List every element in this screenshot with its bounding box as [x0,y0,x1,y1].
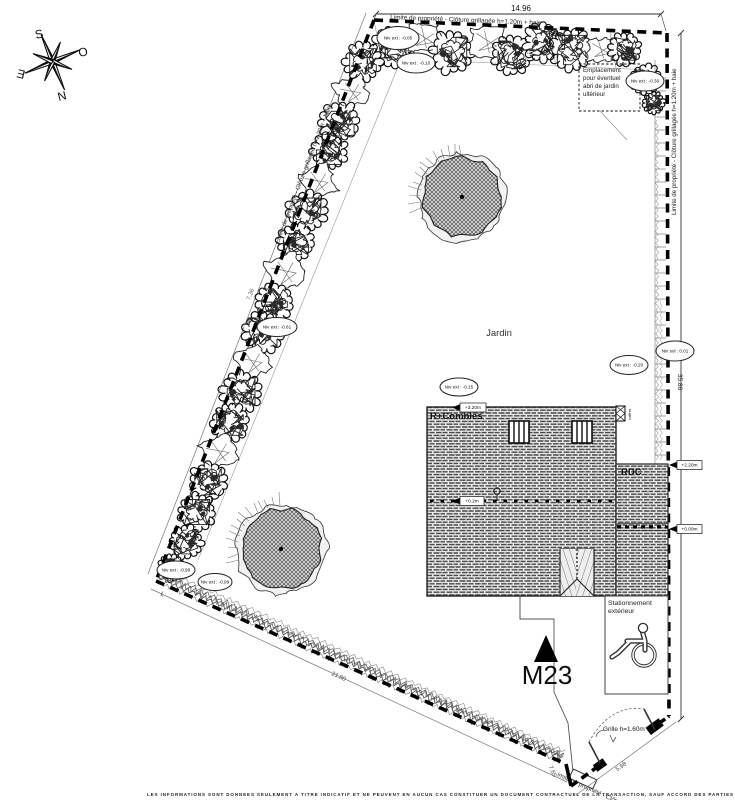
svg-text:35.86: 35.86 [676,374,683,391]
svg-text:pour éventuel: pour éventuel [583,75,621,82]
svg-text:coffret: coffret [627,408,632,420]
svg-text:Niv sol : 0.01: Niv sol : 0.01 [662,349,689,354]
svg-text:R+Combles: R+Combles [430,411,483,422]
svg-text:Limite de propriété - Clôture: Limite de propriété - Clôture grillagée … [671,68,678,215]
svg-text:+0.00m: +0.00m [681,527,697,533]
svg-text:RDC: RDC [621,467,642,478]
svg-text:+2.20m: +2.20m [681,463,697,469]
svg-text:Stationnement: Stationnement [608,600,652,607]
svg-text:Niv ext : -0.81: Niv ext : -0.81 [263,325,292,330]
svg-text:Niv ext : -0.99: Niv ext : -0.99 [201,580,230,585]
svg-text:ultérieur: ultérieur [583,91,605,98]
svg-text:+3.20m: +3.20m [465,405,481,411]
svg-text:Grille h=1.60m: Grille h=1.60m [603,726,645,733]
svg-text:LES INFORMATIONS SONT DONNEES: LES INFORMATIONS SONT DONNEES SEULEMENT … [147,792,733,797]
svg-text:Jardin: Jardin [486,328,512,339]
svg-text:Niv ext : -0.15: Niv ext : -0.15 [445,385,474,390]
svg-text:Niv ext : -0.10: Niv ext : -0.10 [402,61,431,66]
svg-text:abri de jardin: abri de jardin [583,83,619,90]
svg-text:Niv ext : -0.99: Niv ext : -0.99 [162,568,191,573]
svg-text:Niv ext : -0.05: Niv ext : -0.05 [384,36,413,41]
svg-text:M23: M23 [522,660,573,690]
svg-text:Niv ext : -0.30: Niv ext : -0.30 [631,79,660,84]
svg-text:+0.2m: +0.2m [465,499,478,505]
svg-text:14.96: 14.96 [511,4,532,13]
svg-text:extérieur: extérieur [608,608,635,615]
svg-text:Emplacement: Emplacement [583,67,621,74]
svg-text:Niv ext : -0.20: Niv ext : -0.20 [615,363,644,368]
